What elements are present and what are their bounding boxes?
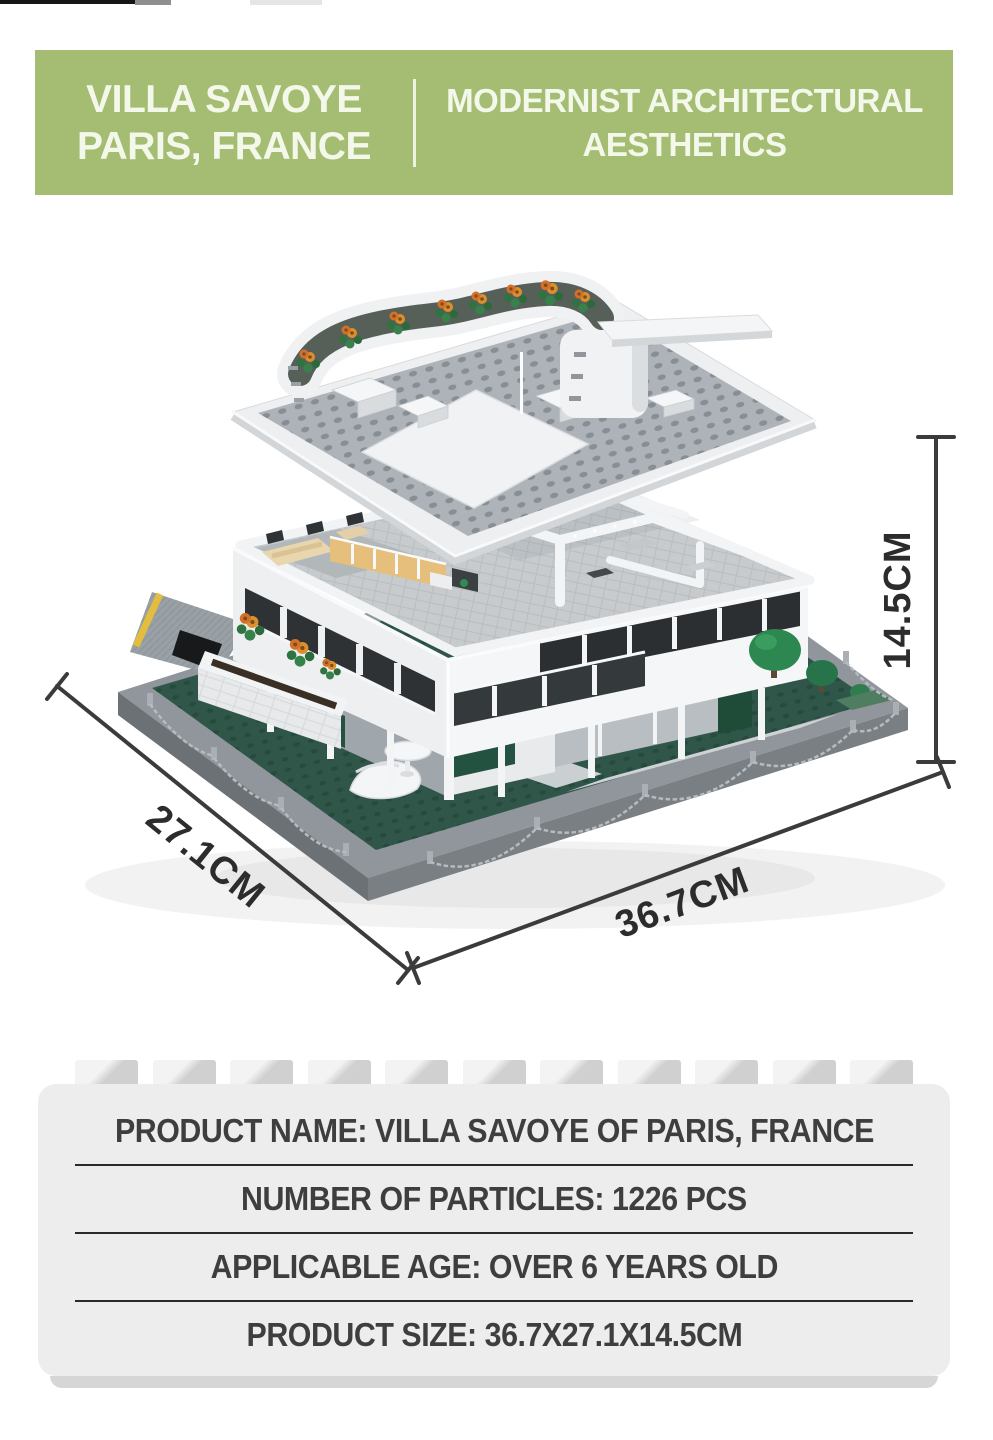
product-infographic: VILLA SAVOYE PARIS, FRANCE MODERNIST ARC… bbox=[0, 0, 993, 1440]
spec-table: PRODUCT NAME: VILLA SAVOYE OF PARIS, FRA… bbox=[38, 1084, 950, 1376]
brick-stud bbox=[308, 1060, 371, 1084]
brick-stud bbox=[773, 1060, 836, 1084]
spec-row-product-name: PRODUCT NAME: VILLA SAVOYE OF PARIS, FRA… bbox=[38, 1098, 950, 1164]
brick-stud bbox=[153, 1060, 216, 1084]
brick-stud bbox=[540, 1060, 603, 1084]
brick-stud bbox=[850, 1060, 913, 1084]
spec-row-particles: NUMBER OF PARTICLES: 1226 PCS bbox=[38, 1166, 950, 1232]
spec-card: PRODUCT NAME: VILLA SAVOYE OF PARIS, FRA… bbox=[38, 1060, 950, 1388]
brick-stud bbox=[75, 1060, 138, 1084]
roof-section bbox=[233, 280, 815, 560]
brick-stud bbox=[385, 1060, 448, 1084]
dimension-label-height: 14.5CM bbox=[877, 530, 919, 669]
product-subtitle-line2: AESTHETICS bbox=[582, 123, 786, 167]
product-title-line1: VILLA SAVOYE bbox=[86, 76, 362, 123]
product-title-line2: PARIS, FRANCE bbox=[77, 123, 371, 170]
dimension-line-height bbox=[918, 437, 954, 762]
product-title: VILLA SAVOYE PARIS, FRANCE bbox=[35, 76, 413, 170]
brick-stud bbox=[618, 1060, 681, 1084]
product-subtitle: MODERNIST ARCHITECTURAL AESTHETICS bbox=[416, 79, 953, 167]
product-subtitle-line1: MODERNIST ARCHITECTURAL bbox=[446, 79, 923, 123]
card-shadow bbox=[50, 1376, 938, 1388]
brick-stud bbox=[695, 1060, 758, 1084]
brick-stud bbox=[230, 1060, 293, 1084]
spec-row-age: APPLICABLE AGE: OVER 6 YEARS OLD bbox=[38, 1234, 950, 1300]
banner-divider bbox=[413, 79, 416, 167]
spec-row-size: PRODUCT SIZE: 36.7X27.1X14.5CM bbox=[38, 1302, 950, 1368]
brick-stud-row bbox=[38, 1060, 950, 1084]
brick-stud bbox=[463, 1060, 526, 1084]
roof-mast bbox=[520, 352, 523, 414]
header-banner: VILLA SAVOYE PARIS, FRANCE MODERNIST ARC… bbox=[35, 50, 953, 195]
